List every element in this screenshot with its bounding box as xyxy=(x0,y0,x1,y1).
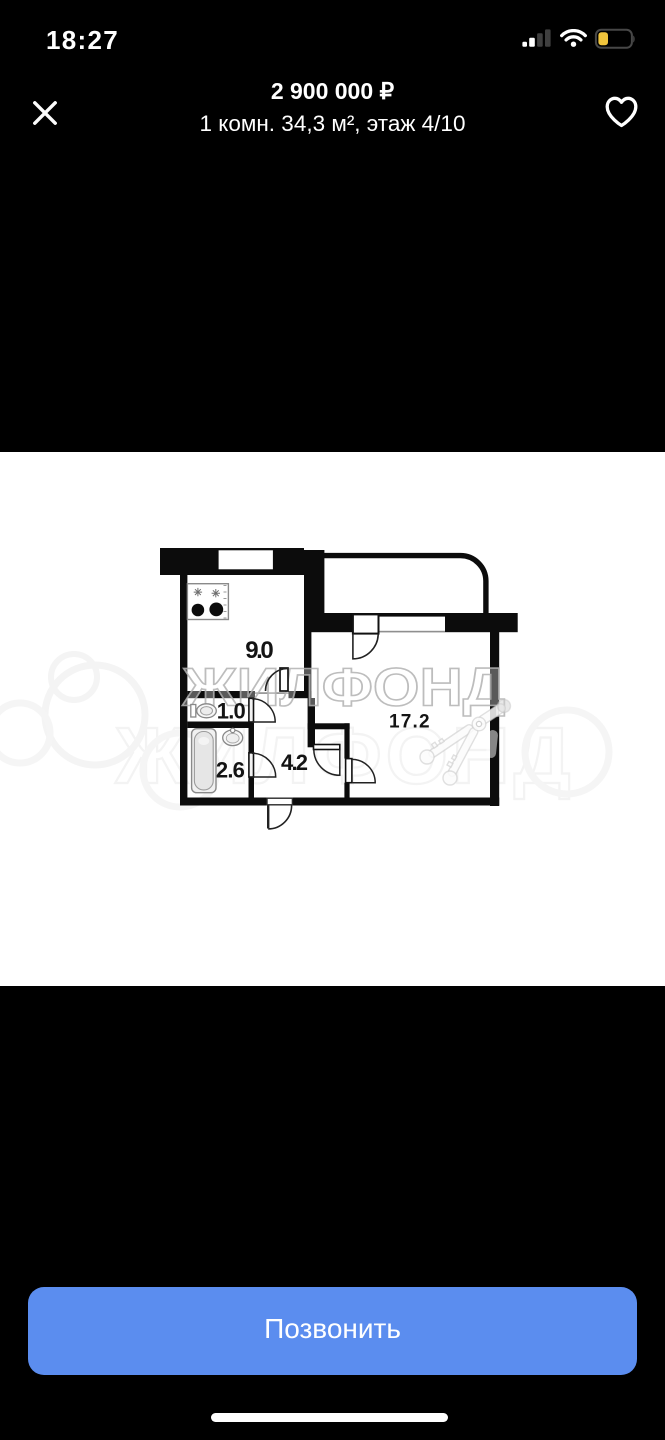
svg-text:17.2: 17.2 xyxy=(389,711,430,732)
svg-text:9.0: 9.0 xyxy=(245,637,274,664)
svg-text:2.6: 2.6 xyxy=(216,758,245,783)
svg-text:1.0: 1.0 xyxy=(217,699,246,724)
svg-text:4.2: 4.2 xyxy=(281,750,308,775)
